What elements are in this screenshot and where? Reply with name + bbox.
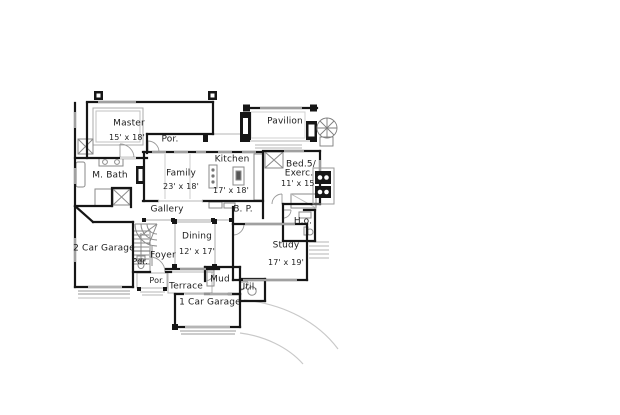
spiral-staircase-icon — [317, 118, 337, 146]
room-label-foyer: Foyer — [150, 252, 176, 261]
room-dims-dining: 12' x 17' — [179, 248, 215, 256]
room-label-dining: Dining — [182, 233, 212, 242]
room-label-family: Family — [166, 170, 196, 179]
room-label-master: Master — [113, 120, 145, 129]
room-label-butlers-pantry: B. P. — [233, 206, 253, 215]
room-dims-master: 15' x 18' — [109, 134, 145, 142]
room-label-1-car-garage: 1 Car Garage — [179, 299, 241, 308]
room-label-2-car-garage: 2 Car Garage — [73, 245, 135, 254]
room-label-terrace: Terrace — [169, 283, 203, 292]
room-label-master-bath: M. Bath — [92, 172, 127, 181]
room-label-porch-top: Por. — [162, 136, 179, 145]
room-label-powder: Pdr. — [132, 258, 148, 266]
room-dims-kitchen: 17' x 18' — [213, 187, 249, 195]
room-label-study: Study — [273, 242, 300, 251]
floor-plan-canvas: Master 15' x 18' Por. Family 23' x 18' K… — [0, 0, 620, 415]
room-label-bed5-line2: Exerc. — [285, 170, 314, 179]
floor-plan-drawing — [0, 0, 620, 415]
room-label-pavilion: Pavilion — [267, 118, 303, 127]
room-label-porch-bottom: Por. — [149, 277, 164, 285]
room-dims-bed5: 11' x 15' — [281, 180, 317, 188]
room-label-gallery: Gallery — [150, 206, 183, 215]
room-label-mud: Mud — [210, 276, 230, 285]
room-dims-study: 17' x 19' — [268, 259, 304, 267]
room-dims-family: 23' x 18' — [163, 183, 199, 191]
bathtub-icon — [76, 162, 85, 187]
room-label-kitchen: Kitchen — [215, 156, 250, 165]
room-label-ho: H.o. — [294, 218, 312, 227]
room-label-util: Util. — [239, 284, 258, 293]
chimney-icon — [94, 91, 217, 100]
